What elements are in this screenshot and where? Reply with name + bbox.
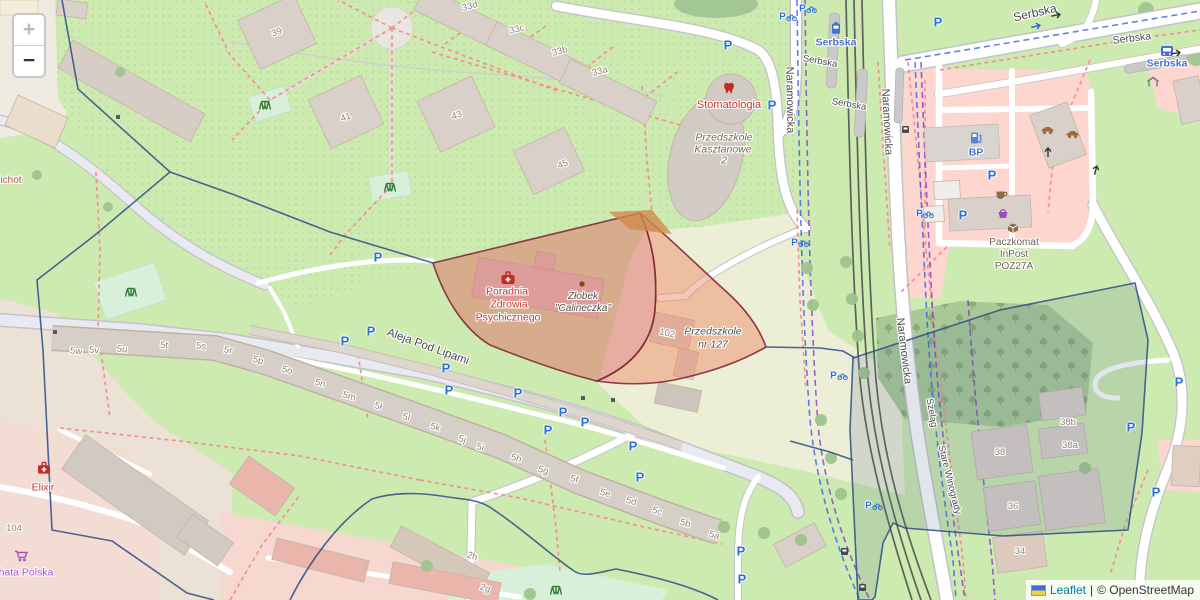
map-canvas[interactable]: Aleja Pod LipamiNaramowickaNaramowickaNa…: [0, 0, 1200, 600]
ukraine-flag-icon: [1031, 585, 1046, 596]
zoom-in-button[interactable]: +: [14, 15, 44, 46]
zoom-out-button[interactable]: −: [14, 46, 44, 76]
attribution-separator: |: [1090, 580, 1093, 600]
attribution-bar: Leaflet | © OpenStreetMap: [1026, 580, 1200, 600]
osm-credit: © OpenStreetMap: [1097, 580, 1194, 600]
leaflet-link[interactable]: Leaflet: [1050, 580, 1086, 600]
zoom-control: + −: [12, 13, 46, 78]
map-tiles: [0, 0, 1200, 600]
